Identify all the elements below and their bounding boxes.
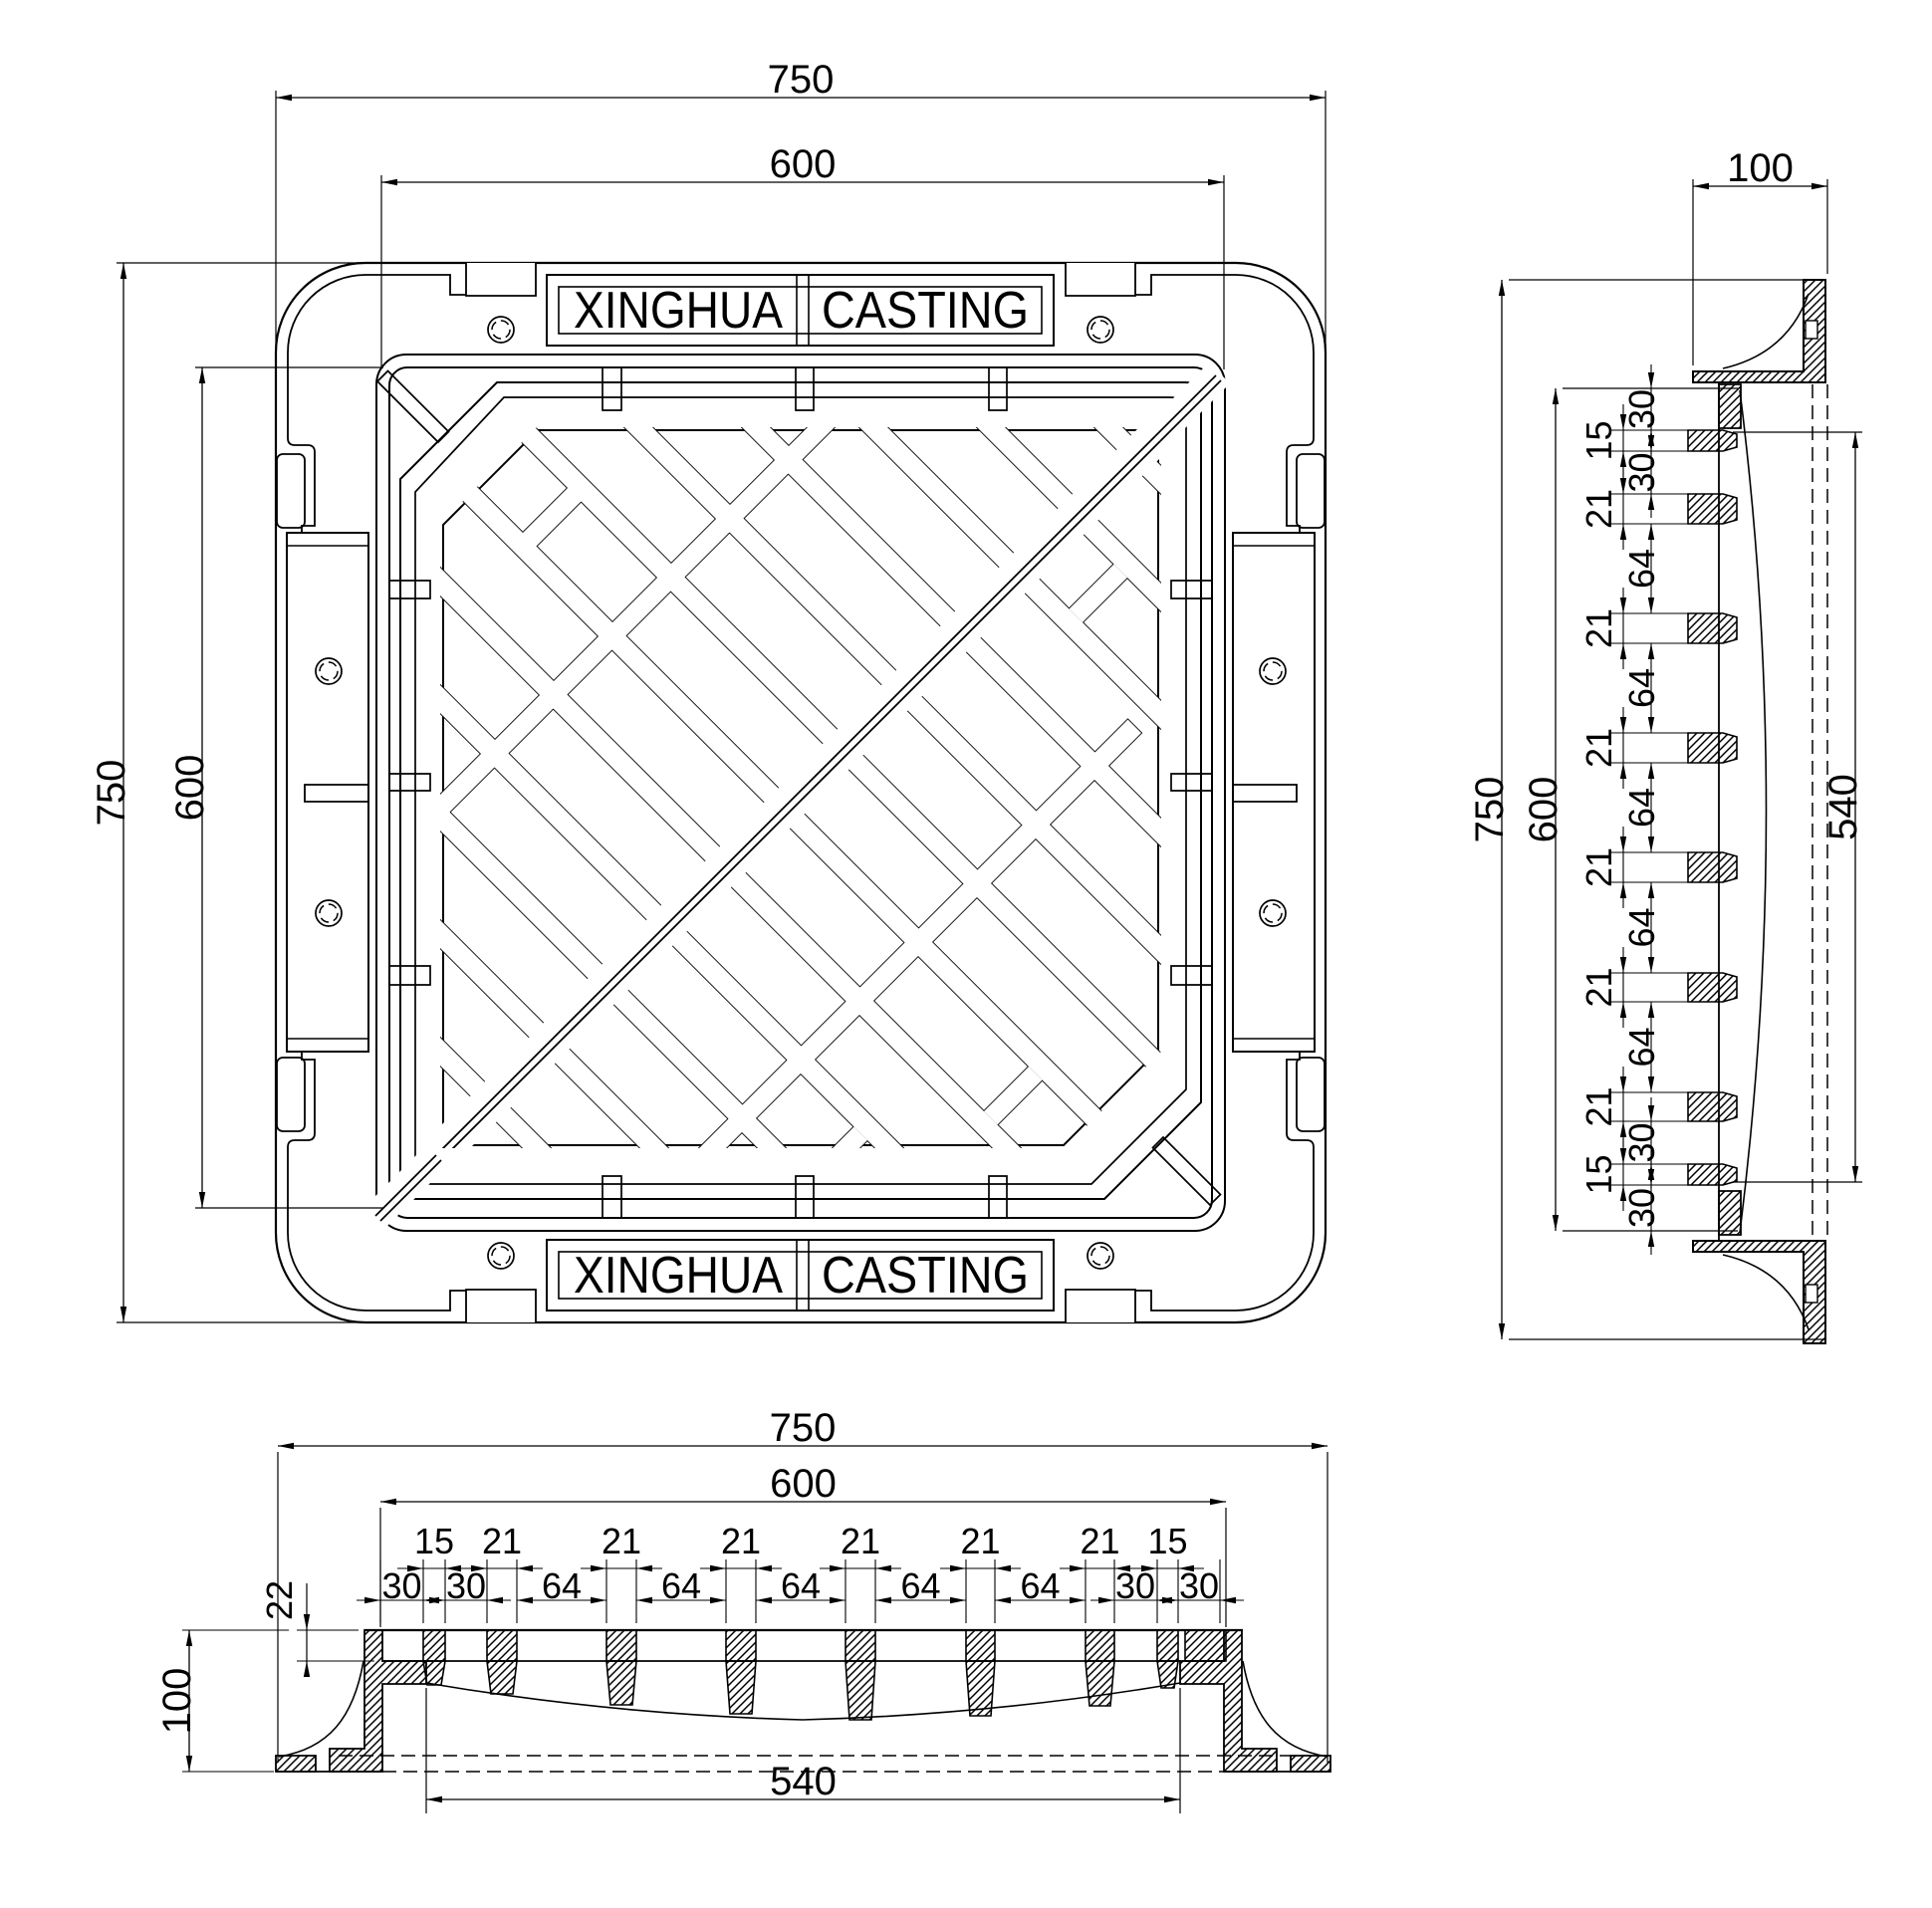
svg-text:540: 540 (770, 1760, 837, 1803)
svg-text:21: 21 (1578, 728, 1619, 768)
svg-text:XINGHUA: XINGHUA (574, 282, 783, 340)
svg-text:600: 600 (168, 755, 212, 822)
svg-text:21: 21 (841, 1521, 880, 1561)
svg-text:21: 21 (1578, 489, 1619, 529)
svg-text:21: 21 (1578, 967, 1619, 1007)
svg-text:600: 600 (770, 142, 837, 186)
svg-text:600: 600 (770, 1462, 837, 1506)
svg-text:21: 21 (1578, 608, 1619, 648)
svg-text:64: 64 (1621, 788, 1662, 828)
svg-text:CASTING: CASTING (822, 282, 1029, 340)
svg-text:30: 30 (1621, 452, 1662, 492)
svg-text:30: 30 (446, 1565, 486, 1606)
svg-text:21: 21 (482, 1521, 522, 1561)
svg-text:100: 100 (155, 1668, 199, 1735)
svg-text:21: 21 (960, 1521, 1000, 1561)
svg-text:100: 100 (1727, 146, 1794, 190)
svg-text:64: 64 (1621, 549, 1662, 589)
svg-text:30: 30 (381, 1565, 421, 1606)
svg-text:15: 15 (414, 1521, 454, 1561)
svg-text:CASTING: CASTING (822, 1247, 1029, 1305)
svg-text:22: 22 (259, 1580, 300, 1620)
svg-text:30: 30 (1621, 1122, 1662, 1162)
svg-text:64: 64 (1621, 907, 1662, 947)
svg-text:750: 750 (90, 760, 133, 827)
svg-text:21: 21 (1578, 847, 1619, 887)
svg-text:15: 15 (1147, 1521, 1187, 1561)
svg-text:64: 64 (661, 1565, 701, 1606)
svg-text:21: 21 (721, 1521, 761, 1561)
svg-text:21: 21 (1080, 1521, 1119, 1561)
svg-text:21: 21 (1578, 1086, 1619, 1126)
svg-text:750: 750 (1468, 777, 1512, 843)
svg-text:15: 15 (1578, 1154, 1619, 1194)
svg-text:15: 15 (1578, 420, 1619, 460)
svg-text:64: 64 (1621, 1027, 1662, 1067)
svg-text:64: 64 (542, 1565, 582, 1606)
svg-text:XINGHUA: XINGHUA (574, 1247, 783, 1305)
svg-text:64: 64 (1621, 668, 1662, 708)
svg-text:30: 30 (1179, 1565, 1219, 1606)
svg-text:21: 21 (602, 1521, 641, 1561)
svg-text:750: 750 (768, 58, 835, 102)
svg-text:30: 30 (1115, 1565, 1155, 1606)
svg-text:600: 600 (1522, 777, 1566, 843)
svg-text:750: 750 (770, 1406, 837, 1450)
svg-text:30: 30 (1621, 389, 1662, 429)
svg-text:64: 64 (900, 1565, 940, 1606)
svg-text:64: 64 (1020, 1565, 1060, 1606)
svg-text:64: 64 (781, 1565, 821, 1606)
svg-text:30: 30 (1621, 1188, 1662, 1228)
